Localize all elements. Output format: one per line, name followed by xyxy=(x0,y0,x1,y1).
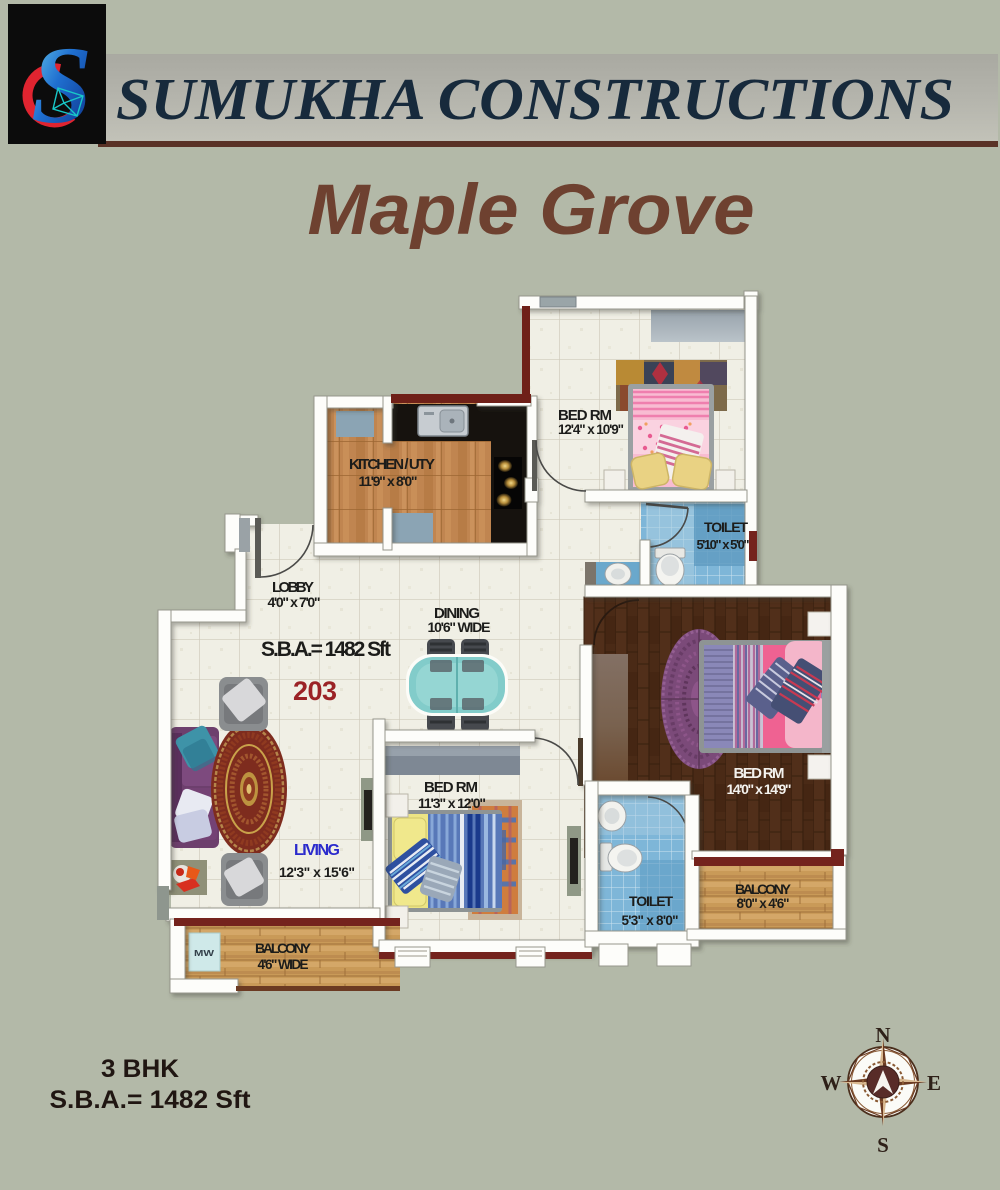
svg-text:TOILET: TOILET xyxy=(629,893,673,909)
svg-text:203: 203 xyxy=(293,676,337,706)
svg-text:S: S xyxy=(877,1133,889,1157)
svg-text:4'0" x 7'0": 4'0" x 7'0" xyxy=(268,594,321,610)
svg-text:S.B.A.= 1482 Sft: S.B.A.= 1482 Sft xyxy=(261,638,391,661)
svg-text:W: W xyxy=(821,1071,842,1095)
svg-text:E: E xyxy=(927,1071,941,1095)
svg-text:12'4" x 10'9": 12'4" x 10'9" xyxy=(558,422,624,437)
svg-text:3 BHK: 3 BHK xyxy=(101,1055,179,1083)
svg-text:LIVING: LIVING xyxy=(294,842,340,859)
svg-text:5'3" x 8'0": 5'3" x 8'0" xyxy=(622,913,679,928)
svg-text:MW: MW xyxy=(194,948,215,958)
svg-text:N: N xyxy=(875,1023,890,1047)
svg-text:BALCONY: BALCONY xyxy=(735,881,792,897)
svg-text:10'6" WIDE: 10'6" WIDE xyxy=(428,619,491,635)
svg-text:11'3" x 12'0": 11'3" x 12'0" xyxy=(418,795,486,811)
svg-text:Maple Grove: Maple Grove xyxy=(308,171,755,250)
svg-text:4'6" WIDE: 4'6" WIDE xyxy=(258,957,309,972)
svg-text:TOILET: TOILET xyxy=(704,519,748,535)
svg-text:8'0" x 4'6": 8'0" x 4'6" xyxy=(737,896,790,911)
svg-text:5'10" x 5'0": 5'10" x 5'0" xyxy=(697,537,750,552)
svg-text:S: S xyxy=(31,24,92,146)
svg-text:BED RM: BED RM xyxy=(734,765,785,782)
svg-text:11'9" x 8'0": 11'9" x 8'0" xyxy=(359,473,418,489)
svg-text:KITCHEN / UTY: KITCHEN / UTY xyxy=(349,456,435,473)
svg-text:14'0" x 14'9": 14'0" x 14'9" xyxy=(727,781,792,797)
svg-text:S.B.A.= 1482 Sft: S.B.A.= 1482 Sft xyxy=(50,1086,252,1114)
svg-text:SUMUKHA CONSTRUCTIONS: SUMUKHA CONSTRUCTIONS xyxy=(116,66,954,132)
svg-text:BED RM: BED RM xyxy=(424,779,478,796)
svg-text:BALCONY: BALCONY xyxy=(255,940,312,956)
svg-text:12'3" x 15'6": 12'3" x 15'6" xyxy=(279,864,355,880)
